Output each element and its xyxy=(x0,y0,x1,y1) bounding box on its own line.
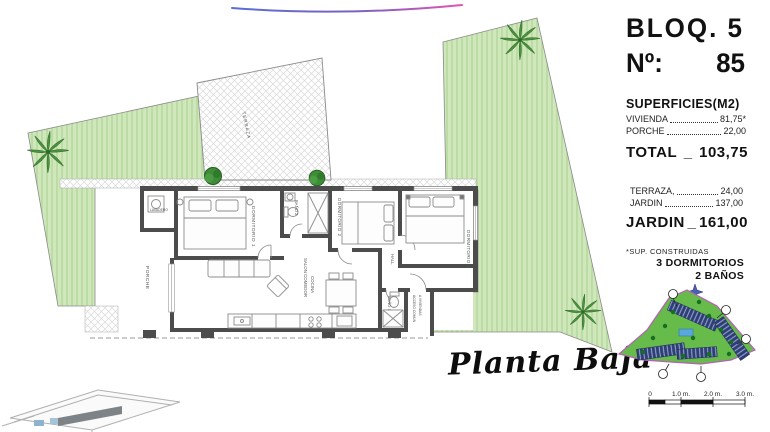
room-label-dormitorio-3: DORMITORIO 3 xyxy=(466,230,471,268)
total-line: TOTAL _ 103,75 xyxy=(626,144,748,161)
terraza-area: TERRAZA xyxy=(197,58,331,180)
row-label: JARDIN xyxy=(630,197,663,209)
scale-bar: 0 1.0 m. 2.0 m. 3.0 m. xyxy=(613,388,770,414)
footnote: *SUP. CONSTRUIDAS xyxy=(626,247,709,256)
room-label-acceso-1: ACCESO COMUN xyxy=(412,295,416,323)
row-label: PORCHE xyxy=(626,125,665,137)
leader-dots xyxy=(677,194,719,195)
row-value: 22,00 xyxy=(723,125,746,137)
room-label-acceso-2: A VIVIENDAS xyxy=(418,295,422,316)
total-label: TOTAL xyxy=(626,144,677,161)
row-label: VIVIENDA xyxy=(626,113,668,125)
superficies-row: PORCHE 22,00 xyxy=(626,125,746,137)
superficies-row: VIVIENDA 81,75* xyxy=(626,113,746,125)
floorplan-sheet: TERRAZA xyxy=(0,0,770,432)
room-label-porche: PORCHE xyxy=(144,266,150,290)
total-sep: _ xyxy=(684,144,693,161)
jardin-label: JARDIN xyxy=(626,214,685,231)
room-label-dormitorio-1: DORMITORIO 1 xyxy=(250,206,256,247)
jardin-total-line: JARDIN _ 161,00 xyxy=(626,214,748,231)
room-label-hall: HALL xyxy=(390,254,395,265)
acceso-floor xyxy=(404,292,432,332)
leader-dots xyxy=(667,134,722,135)
scale-label-2: 2.0 m. xyxy=(704,391,722,398)
row-value: 81,75* xyxy=(720,113,746,125)
row-value: 137,00 xyxy=(715,197,743,209)
leader-dots xyxy=(665,206,714,207)
row-value: 24,00 xyxy=(720,185,743,197)
pavement-corner xyxy=(85,306,118,332)
block-title: BLOQ. 5 xyxy=(626,12,744,44)
room-label-bano-2: BAÑO 2 xyxy=(294,200,299,216)
room-label-bano-1: BAÑO 1 xyxy=(387,296,392,311)
superficies-title: SUPERFICIES(M2) xyxy=(626,97,740,111)
scale-label-0: 0 xyxy=(648,391,652,398)
superficies-list: VIVIENDA 81,75* PORCHE 22,00 xyxy=(626,113,746,137)
room-label-cocina: COCINA xyxy=(310,276,315,293)
exterior-list: TERRAZA, 24,00 JARDIN 137,00 xyxy=(630,185,743,209)
unit-number-value: 85 xyxy=(716,47,745,79)
bush-left xyxy=(205,168,222,185)
scale-label-1: 1.0 m. xyxy=(672,391,690,398)
unit-number-row: Nº: 85 xyxy=(626,47,745,79)
bush-right xyxy=(309,170,325,186)
room-label-dormitorio-2: DORMITORIO 2 xyxy=(337,198,342,236)
total-value: 103,75 xyxy=(699,144,748,161)
unit-number-label: Nº: xyxy=(626,47,663,79)
feature-dormitorios: 3 DORMITORIOS xyxy=(656,257,744,269)
logo-swoosh xyxy=(232,5,462,12)
jardin-value: 161,00 xyxy=(699,214,748,231)
leader-dots xyxy=(670,122,718,123)
scale-labels: 0 1.0 m. 2.0 m. 3.0 m. xyxy=(648,391,754,398)
info-panel: BLOQ. 5 Nº: 85 SUPERFICIES(M2) VIVIENDA … xyxy=(613,0,770,432)
building-render-sketch xyxy=(0,374,190,432)
superficies-row: JARDIN 137,00 xyxy=(630,197,743,209)
pool xyxy=(679,329,693,336)
jardin-sep: _ xyxy=(688,214,697,231)
room-label-lavadero: LAVADERO xyxy=(150,208,168,212)
room-label-salon: SALON COMEDOR xyxy=(303,258,308,297)
scale-label-3: 3.0 m. xyxy=(736,391,754,398)
row-label: TERRAZA, xyxy=(630,185,675,197)
feature-banos: 2 BAÑOS xyxy=(695,270,744,282)
site-map xyxy=(613,282,770,386)
superficies-row: TERRAZA, 24,00 xyxy=(630,185,743,197)
